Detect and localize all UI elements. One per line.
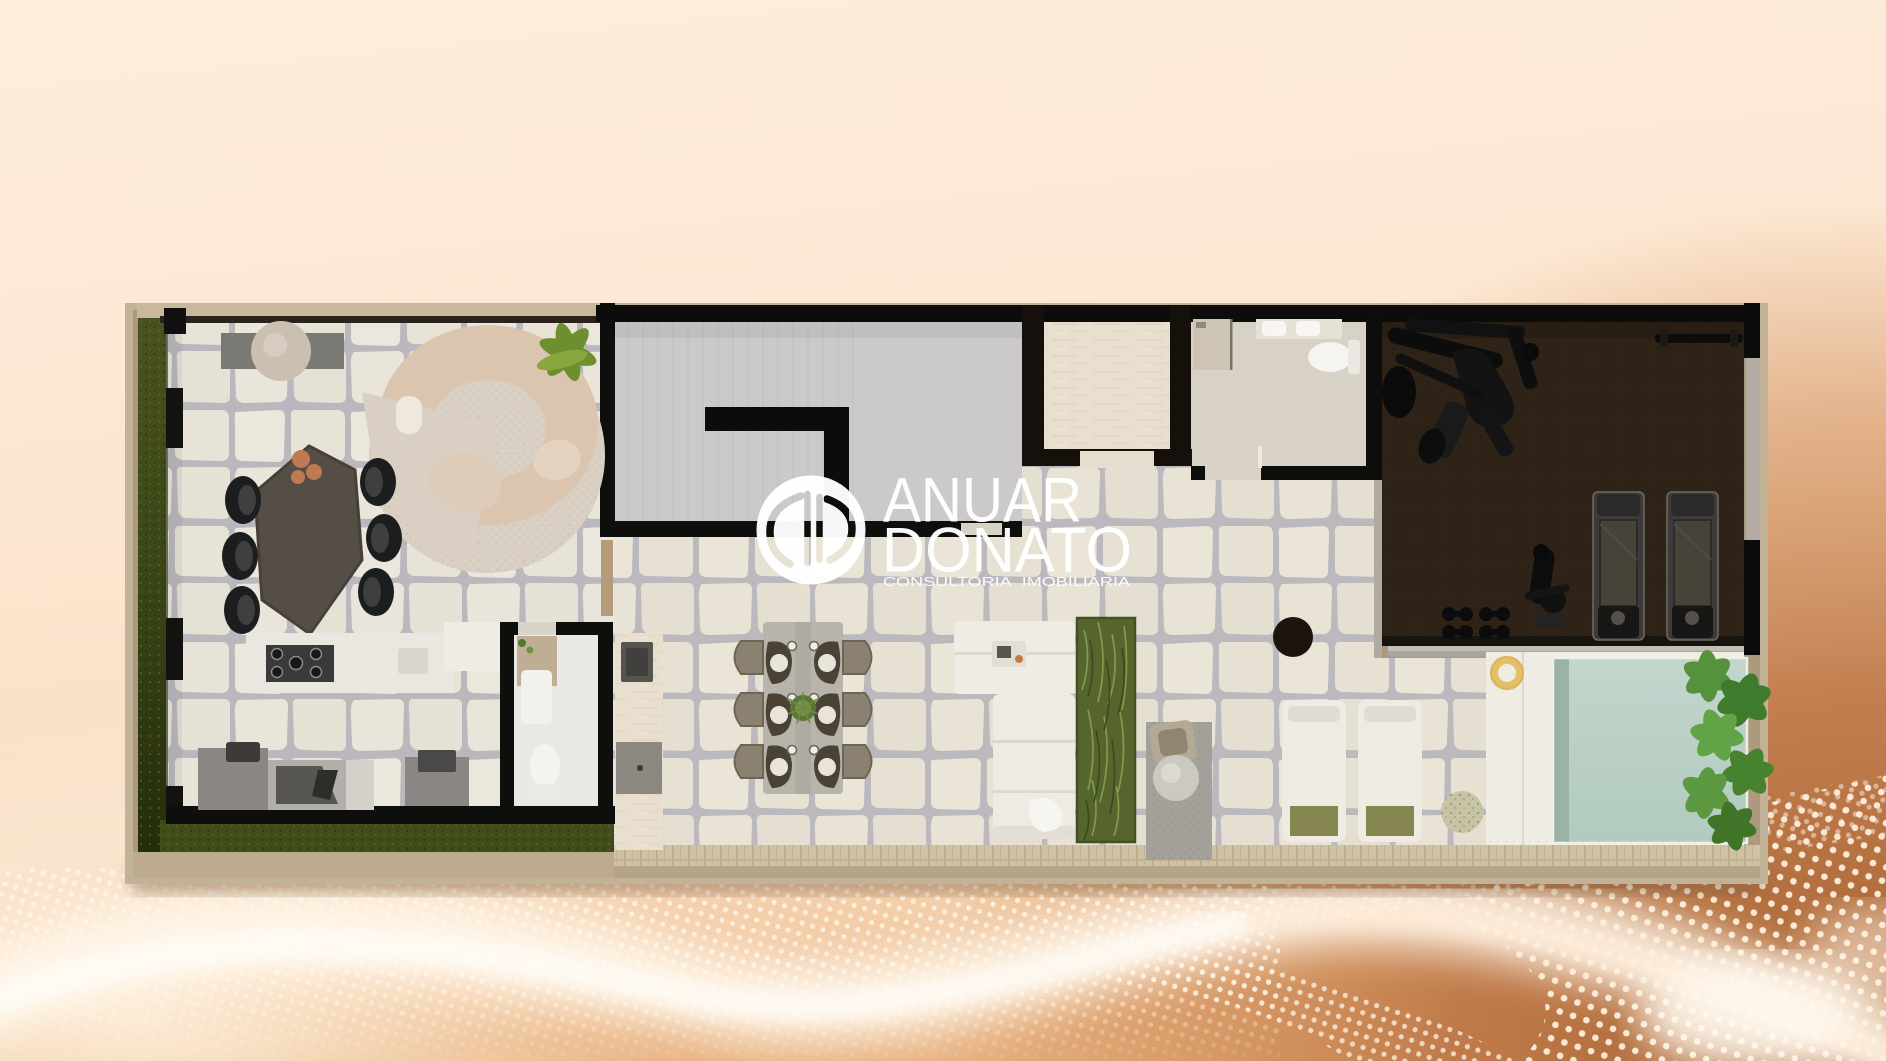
svg-text:CONSULTORIA IMOBILIÁRIA: CONSULTORIA IMOBILIÁRIA [883, 574, 1131, 589]
